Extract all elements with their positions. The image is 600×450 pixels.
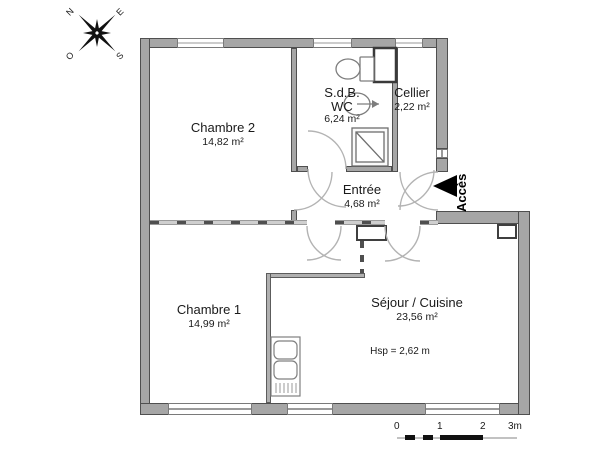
- label-cellier: Cellier 2,22 m²: [376, 87, 448, 114]
- room-area: 23,56 m²: [337, 310, 497, 325]
- label-sejour-cuisine: Séjour / Cuisine 23,56 m²: [337, 295, 497, 325]
- scale-tick-2: 2: [480, 421, 486, 432]
- scale-tick-0: 0: [394, 421, 400, 432]
- room-area: 14,99 m²: [149, 317, 269, 332]
- room-name: Chambre 2: [163, 120, 283, 135]
- compass-s: S: [114, 50, 125, 61]
- access-label: Accès: [454, 148, 472, 238]
- compass-n: N: [64, 6, 76, 18]
- room-area: 14,82 m²: [163, 135, 283, 150]
- room-area: 6,24 m²: [302, 113, 382, 127]
- room-name: Entrée: [312, 182, 412, 197]
- door-arc-sdb-in: [308, 131, 346, 169]
- floor-plan: N E S O Chambre 2 14,82 m² S.d.B. WC 6,2…: [0, 0, 600, 450]
- compass-rose: N E S O: [55, 0, 139, 66]
- shower-icon: [352, 128, 388, 166]
- toilet-icon: [336, 57, 374, 81]
- room-name: S.d.B.: [302, 86, 382, 100]
- room-name: Cellier: [376, 87, 448, 101]
- scale-tick-3m: 3m: [508, 421, 522, 432]
- label-entree: Entrée 4,68 m²: [312, 182, 412, 212]
- fixtures-layer: [0, 0, 600, 450]
- scale-bar-dash-2: [423, 435, 433, 440]
- compass-o: O: [64, 50, 76, 62]
- room-area: 2,22 m²: [376, 101, 448, 115]
- scale-tick-1: 1: [437, 421, 443, 432]
- duct-shaft: [374, 48, 396, 82]
- room-area: 4,68 m²: [312, 197, 412, 212]
- room-name: Chambre 1: [149, 302, 269, 317]
- room-name: Séjour / Cuisine: [337, 295, 497, 310]
- kitchen-sink-unit: [271, 337, 300, 396]
- scale-bar-dash-1: [405, 435, 415, 440]
- compass-e: E: [114, 6, 125, 17]
- label-sdb-wc: S.d.B. WC 6,24 m²: [302, 86, 382, 127]
- label-chambre1: Chambre 1 14,99 m²: [149, 302, 269, 332]
- scale-bar: 0 1 2 3m: [391, 421, 531, 445]
- room-name-2: WC: [302, 100, 382, 114]
- label-chambre2: Chambre 2 14,82 m²: [163, 120, 283, 150]
- scale-bar-solid: [440, 435, 483, 440]
- ceiling-height-note: Hsp = 2,62 m: [340, 346, 460, 357]
